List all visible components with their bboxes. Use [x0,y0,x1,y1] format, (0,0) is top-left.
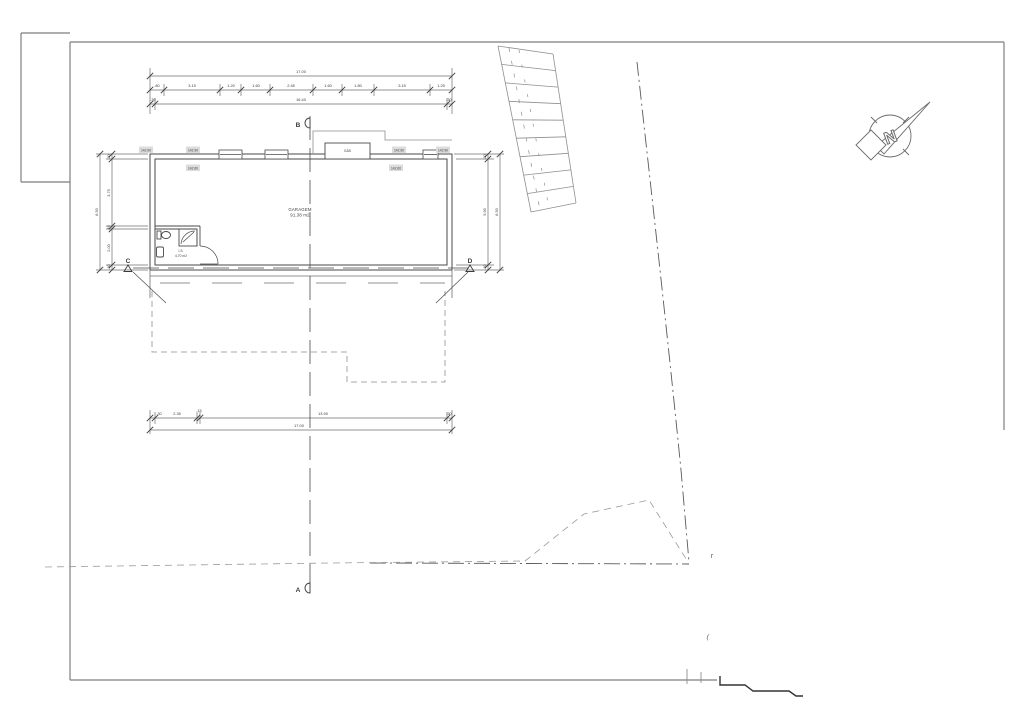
wc-labels: I.S. 4,70 m2 [175,249,187,258]
section-letter-c: C [126,258,131,265]
dim-label: 1.60 [252,83,260,88]
dim-label: .30 [150,97,156,102]
dim-label: 5.90 [482,207,487,215]
wc-name: I.S. [179,249,184,253]
dim-label: .30 [106,153,111,159]
dim-label: .30 [446,97,452,102]
garage-name: GARAGEM [288,207,312,212]
level-label: 142.90 [394,149,404,153]
section-lines [133,116,468,592]
dim-label: 1.25 [437,83,445,88]
north-arrow: N [856,102,930,160]
gas-box: GÁS [325,143,370,159]
section-marker-B: B [296,118,310,129]
dashed-projection [152,291,445,382]
dimension-ticks-left [97,151,115,273]
slope-hatch-band [498,46,576,212]
dim-label: 1.80 [354,83,362,88]
terrain-knoll-dashed [525,500,688,562]
terrain-dashed-line [45,561,525,567]
section-letter-d: D [468,258,473,265]
apron [150,270,452,298]
garage-area: 91,38 m2 [290,213,310,218]
dimension-labels-left: .30 3.75 .15 2.00 .30 6.50 [94,153,111,269]
dim-label: .15 [196,408,201,413]
dimension-chain-bottom [150,410,452,434]
dim-right-total: 6.50 [494,207,499,215]
drawing-sheet: 17.00 .80 3.15 1.20 1.60 2.45 1.60 1.80 … [0,0,1018,720]
dimension-chain-top [150,68,452,114]
level-label: 142.60 [188,167,198,171]
stray-mark-r: r [711,553,714,560]
garage-labels: GARAGEM 91,38 m2 [288,207,312,218]
boundary-dashdot-bottom [370,563,689,564]
dim-bottom-total: 17.00 [294,423,305,428]
dim-label: 2.00 [106,243,111,251]
dim-label: .30 [156,411,162,416]
site-plan-svg: 17.00 .80 3.15 1.20 1.60 2.45 1.60 1.80 … [0,0,1018,720]
sheet-frame [21,33,1004,680]
level-label: 142.60 [391,167,401,171]
dim-label: 3.75 [106,189,111,197]
dimension-labels-right: .30 5.90 .30 6.50 [482,153,499,269]
section-letter-b: B [296,122,301,129]
dim-label: .80 [154,83,160,88]
dim-label: .30 [482,263,487,269]
gas-label: GÁS [344,149,352,153]
section-marker-A: A [296,583,310,594]
dim-label: 2.35 [173,411,181,416]
stray-mark-paren: ( [706,634,711,642]
dim-label: 16.40 [296,97,307,102]
dimension-labels-top: 17.00 .80 3.15 1.20 1.60 2.45 1.60 1.80 … [150,69,452,102]
dim-label: .30 [446,411,452,416]
level-label: 142.90 [141,149,151,153]
level-label: 142.90 [188,149,198,153]
dim-label: .15 [106,225,111,230]
dimension-chain-left [96,154,148,270]
dim-left-total: 6.50 [94,207,99,215]
dim-label: .30 [482,153,487,159]
wc-area: 4,70 m2 [175,254,187,258]
dim-label: 13.90 [318,411,329,416]
boundary-lines [45,62,701,684]
wc-room [155,226,218,264]
dim-top-total: 17.00 [296,69,307,74]
dim-label: .30 [106,263,111,269]
dim-label: 3.15 [398,83,406,88]
level-label: 142.90 [438,149,448,153]
boundary-dashdot-right [637,62,689,562]
dim-label: 2.45 [287,83,295,88]
dim-label: 3.15 [188,83,196,88]
dim-label: 1.20 [227,83,235,88]
section-letter-a: A [296,587,301,594]
terrain-step-line [720,676,803,696]
dim-label: 1.60 [324,83,332,88]
